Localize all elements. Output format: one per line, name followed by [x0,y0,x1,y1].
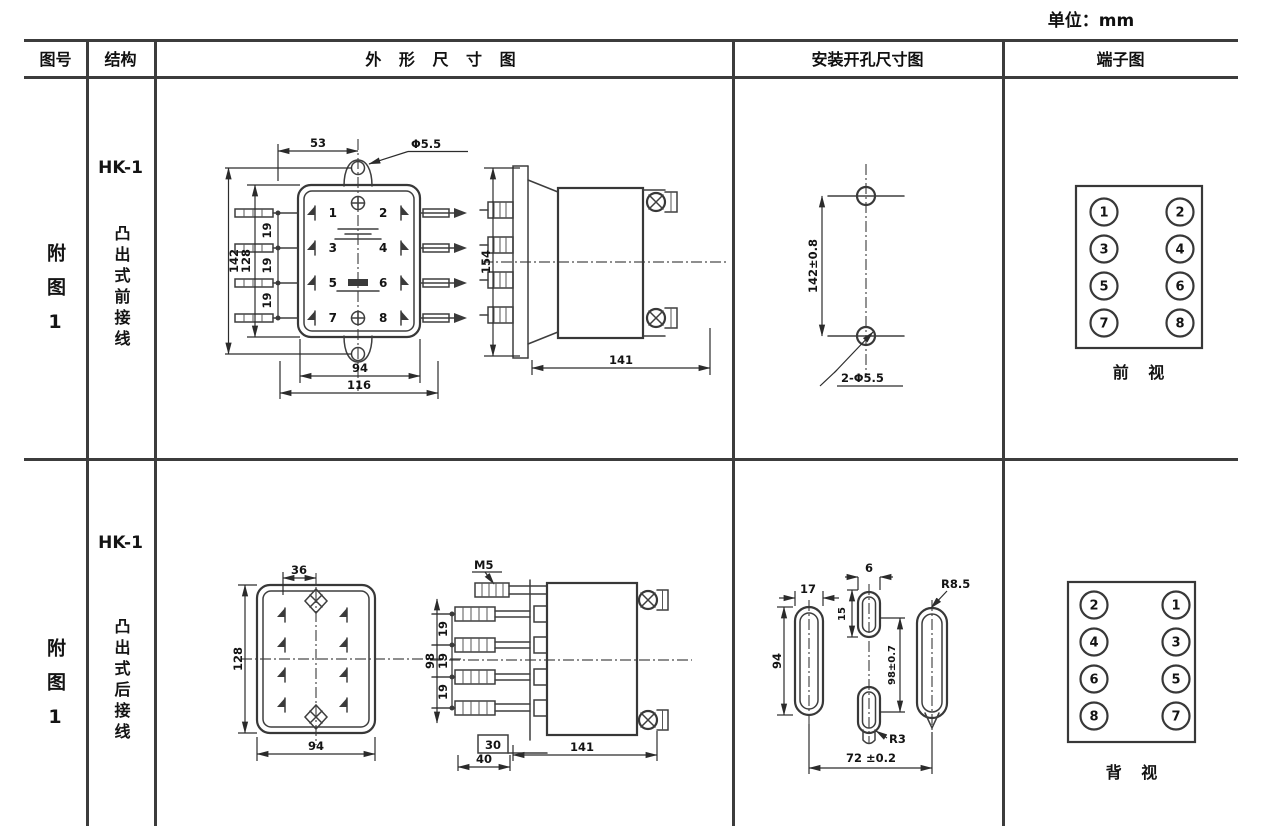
dim-label: 141 [570,740,594,754]
left-slot [795,600,823,724]
header-terminal: 端子图 [1003,40,1238,76]
dim-label: 94 [308,739,324,753]
table-row-divider [24,458,1238,461]
dim-label: 19 [436,621,450,637]
dim-94: 94 [770,607,793,715]
dim-36: 36 [283,563,316,595]
svg-text:2: 2 [1089,599,1098,614]
dim-142-08: 142±0.8 [806,196,822,336]
dim-98-07: 98±0.7 [880,618,905,712]
terminal-number: 1 [329,206,337,220]
dim-94: 94 [257,737,375,761]
dim-label: 94 [352,361,368,375]
terminal-number: 7 [329,311,337,325]
dim-label: M5 [474,558,493,572]
dim-label: R8.5 [941,577,970,591]
row1-outline-side-view-drawing: 154 141 [480,150,730,420]
svg-text:5: 5 [1171,673,1180,688]
dim-53: 53 [278,136,358,181]
header-figure-no: 图号 [25,40,86,76]
dim-label: 17 [800,582,816,596]
dim-pitch-19: 19 19 19 [260,211,281,321]
svg-text:3: 3 [1099,243,1108,258]
dim-label: Φ5.5 [411,137,441,151]
svg-text:1: 1 [1171,599,1180,614]
dim-label: 72 ±0.2 [846,751,896,765]
svg-text:7: 7 [1099,317,1108,332]
row1-figure-no: 附图1 [25,220,86,370]
terminal-row-1-2: 1 2 [235,206,467,220]
dim-label: 19 [260,257,274,273]
terminal-number: 2 [379,206,387,220]
header-outline: 外 形 尺 寸 图 [155,40,732,76]
dim-label: 19 [260,292,274,308]
svg-text:8: 8 [1089,710,1098,725]
header-install: 安装开孔尺寸图 [733,40,1002,76]
terminal-number: 6 [379,276,387,290]
dim-label: 128 [231,647,245,671]
dim-15: 15 [837,590,858,637]
relay-case [558,188,643,338]
header-structure: 结构 [87,40,154,76]
row1-outline-front-view-drawing: 1 2 3 4 5 6 7 8 [225,133,475,425]
svg-text:7: 7 [1171,710,1180,725]
row1-install-hole-drawing: 142±0.8 2-Φ5.5 [800,160,990,400]
svg-text:3: 3 [1171,636,1180,651]
dim-label: 19 [436,684,450,700]
svg-text:5: 5 [1099,280,1108,295]
svg-text:6: 6 [1175,280,1184,295]
dim-label: 128 [239,249,253,273]
dim-pitch-19: 19 19 19 [436,612,455,711]
holes-callout: 2-Φ5.5 [820,332,903,386]
dim-94: 94 [300,339,420,383]
svg-text:1: 1 [1099,206,1108,221]
terminal-number: 8 [379,311,387,325]
row1-model: HK-1 [87,158,154,178]
dim-label: 2-Φ5.5 [841,371,884,385]
svg-text:6: 6 [1089,673,1098,688]
row2-terminal-diagram: 2 1 4 3 6 5 8 7 背 视 [1055,575,1220,795]
terminal-pins: 1 2 3 4 5 6 7 8 [1091,199,1194,337]
middle-slots [858,584,880,744]
top-stud [475,583,547,597]
dim-label: 19 [436,653,450,669]
dim-label: 15 [837,607,848,621]
dim-label: 116 [347,378,371,392]
terminal-row-3-4: 3 4 [235,241,467,255]
relay-body [298,160,420,362]
dim-40: 40 [458,752,510,771]
table-header-border [24,76,1238,79]
screw-callout-m5: M5 [472,558,502,584]
relay-case [547,583,637,735]
terminal-number: 3 [329,241,337,255]
dim-label: 30 [485,738,501,752]
terminal-number: 4 [379,241,387,255]
dim-label: 6 [865,561,873,575]
dim-72-02: 72 ±0.2 [809,724,932,774]
svg-text:8: 8 [1175,317,1184,332]
svg-text:4: 4 [1175,243,1184,258]
row2-model: HK-1 [87,533,154,553]
dim-label: R3 [889,732,906,746]
dim-label: 40 [476,752,492,766]
dim-label: 19 [260,222,274,238]
dim-label: 98 [423,653,437,669]
row2-figure-no: 附图1 [25,615,86,765]
dim-label: 53 [310,136,326,150]
unit-label: 单位：mm [1011,6,1171,31]
dim-label: 36 [291,563,307,577]
row1-terminal-diagram: 1 2 3 4 5 6 7 8 前 视 [1060,180,1225,390]
dim-label: 142±0.8 [806,239,820,293]
terminal-pins: 2 1 4 3 6 5 8 7 [1081,592,1190,730]
table-col-line-4 [1002,39,1005,826]
dim-hole-dia: Φ5.5 [369,137,468,164]
right-slot [917,600,947,732]
svg-text:2: 2 [1175,206,1184,221]
mounting-screws [643,190,677,336]
table-col-line-2 [154,39,157,826]
dim-label: 141 [609,353,633,367]
table-col-line-3 [732,39,735,826]
manual-page: 单位：mm 图号 结构 外 形 尺 寸 图 安装开孔尺寸图 端子图 附图1 HK… [0,0,1269,826]
terminal-number: 5 [329,276,337,290]
dim-128: 128 [231,585,257,733]
view-caption: 背 视 [1106,763,1165,782]
dim-label: 154 [479,250,493,274]
dim-154: 154 [479,168,520,356]
row1-structure-type: 凸出式前接线 [87,205,154,370]
svg-text:4: 4 [1089,636,1098,651]
contact-symbol [337,279,379,291]
row2-structure-type: 凸出式后接线 [87,598,154,763]
row2-install-hole-drawing: 17 94 6 15 98±0.7 [775,562,1000,797]
radius-r85-callout: R8.5 [931,577,970,608]
dim-label: 98±0.7 [887,645,898,685]
dim-label: 94 [770,653,784,669]
radius-r3-callout: R3 [876,731,906,746]
view-caption: 前 视 [1113,363,1172,382]
terminal-hooks [277,608,347,712]
row2-outline-side-view-drawing: M5 30 [430,555,695,810]
